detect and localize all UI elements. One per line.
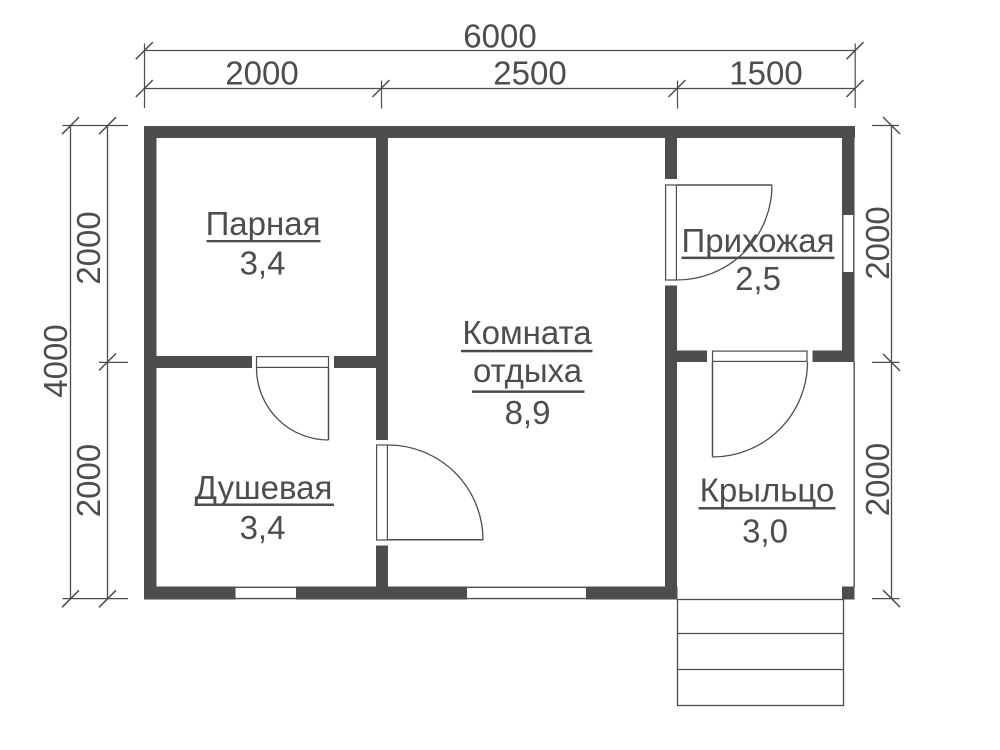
svg-text:3,0: 3,0 (742, 513, 788, 550)
svg-text:2000: 2000 (70, 211, 107, 284)
svg-text:отдыха: отдыха (473, 352, 583, 389)
svg-text:2000: 2000 (225, 55, 298, 92)
svg-text:2000: 2000 (70, 444, 107, 517)
svg-text:4000: 4000 (37, 324, 74, 397)
svg-text:2,5: 2,5 (735, 260, 781, 297)
svg-text:2500: 2500 (493, 55, 566, 92)
svg-text:Прихожая: Прихожая (682, 222, 835, 259)
svg-text:3,4: 3,4 (240, 509, 286, 546)
svg-text:6000: 6000 (463, 18, 536, 55)
svg-text:2000: 2000 (859, 206, 896, 279)
svg-text:Душевая: Душевая (195, 469, 333, 506)
svg-text:Крыльцо: Крыльцо (700, 472, 835, 509)
svg-text:8,9: 8,9 (505, 394, 551, 431)
svg-text:2000: 2000 (859, 443, 896, 516)
svg-text:Комната: Комната (462, 314, 592, 351)
svg-text:3,4: 3,4 (240, 245, 286, 282)
svg-text:1500: 1500 (729, 55, 802, 92)
svg-text:Парная: Парная (206, 205, 321, 242)
